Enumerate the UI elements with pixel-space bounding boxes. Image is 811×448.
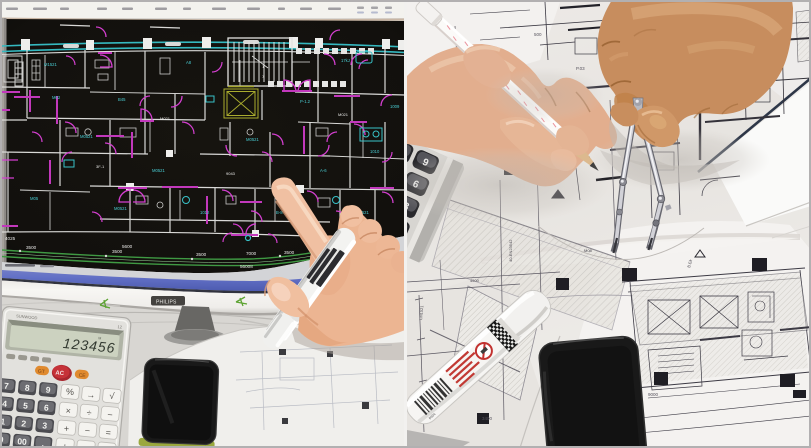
svg-text:56008: 56008 bbox=[240, 264, 253, 269]
svg-text:5600: 5600 bbox=[122, 244, 133, 249]
svg-text:PHILIPS: PHILIPS bbox=[156, 299, 177, 305]
svg-text:3500: 3500 bbox=[196, 252, 207, 257]
svg-text:CE: CE bbox=[78, 373, 86, 380]
svg-text:P.03: P.03 bbox=[576, 66, 585, 71]
svg-text:M0521: M0521 bbox=[152, 168, 165, 173]
svg-text:M1521: M1521 bbox=[44, 62, 57, 67]
svg-text:A8: A8 bbox=[186, 60, 192, 65]
svg-text:M05: M05 bbox=[30, 196, 39, 201]
svg-text:M08: M08 bbox=[584, 248, 593, 253]
svg-text:M0521: M0521 bbox=[114, 206, 127, 211]
svg-text:=: = bbox=[105, 427, 111, 437]
svg-text:M021: M021 bbox=[338, 112, 349, 117]
svg-text:3500: 3500 bbox=[284, 250, 295, 255]
svg-text:4025: 4025 bbox=[5, 236, 16, 241]
svg-text:√: √ bbox=[109, 391, 115, 401]
svg-text:÷: ÷ bbox=[86, 408, 92, 418]
svg-text:3500: 3500 bbox=[26, 245, 37, 250]
svg-text:40-EN23542: 40-EN23542 bbox=[508, 239, 513, 262]
svg-text:%: % bbox=[66, 386, 75, 397]
svg-text:9043: 9043 bbox=[226, 171, 236, 176]
svg-text:1009: 1009 bbox=[390, 104, 400, 109]
svg-text:3500: 3500 bbox=[112, 249, 123, 254]
svg-text:4500: 4500 bbox=[470, 278, 480, 283]
svg-text:B45: B45 bbox=[118, 97, 126, 102]
svg-text:×: × bbox=[65, 406, 71, 416]
svg-text:M: M bbox=[98, 336, 101, 340]
svg-text:M0521: M0521 bbox=[80, 134, 93, 139]
svg-text:+: + bbox=[63, 423, 69, 433]
svg-text:→: → bbox=[86, 389, 96, 400]
svg-text:M0521: M0521 bbox=[246, 137, 259, 142]
svg-text:P-1.2: P-1.2 bbox=[300, 99, 311, 104]
svg-text:7000: 7000 bbox=[246, 251, 257, 256]
svg-text:3F-1: 3F-1 bbox=[96, 164, 105, 169]
svg-text:1010: 1010 bbox=[370, 149, 380, 154]
svg-text:A-6: A-6 bbox=[320, 168, 327, 173]
svg-text:−: − bbox=[84, 425, 90, 435]
svg-text:M02: M02 bbox=[52, 95, 61, 100]
svg-text:1012: 1012 bbox=[200, 210, 210, 215]
svg-text:17kJ: 17kJ bbox=[341, 58, 350, 63]
svg-text:−: − bbox=[107, 410, 113, 420]
svg-text:GT: GT bbox=[38, 369, 45, 376]
svg-text:00: 00 bbox=[17, 436, 28, 447]
svg-text:3400: 3400 bbox=[482, 416, 493, 421]
svg-text:500: 500 bbox=[534, 32, 542, 37]
svg-text:M021: M021 bbox=[160, 116, 171, 121]
svg-text:AC: AC bbox=[55, 370, 65, 377]
svg-text:9000: 9000 bbox=[648, 392, 659, 397]
